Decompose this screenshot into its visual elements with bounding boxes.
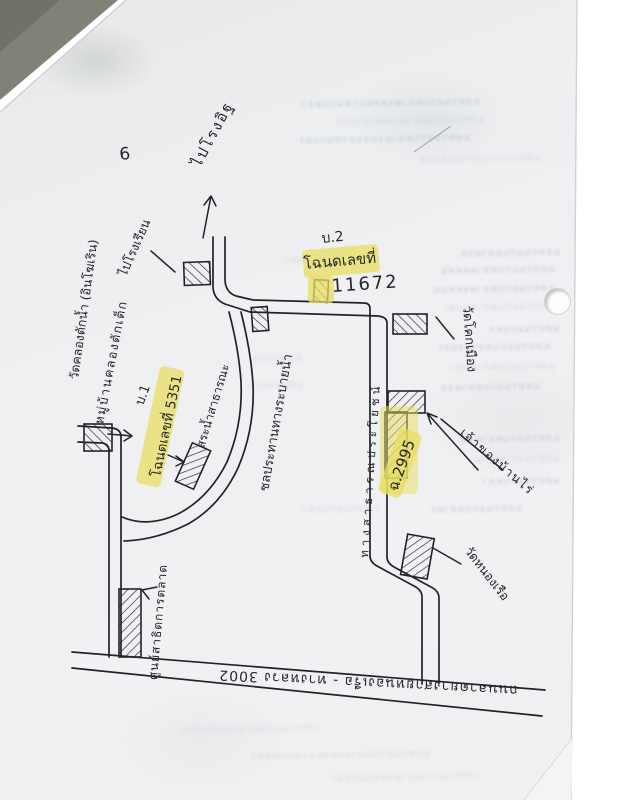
label-temple-bottom: วัดหนองเรือ [462,544,513,604]
building-hatch-rect [393,314,427,334]
label-main-road: ถนนลาดยางสายหนองเรือ - ทางหลวง 3002 [218,666,518,698]
road-s-curve-west [122,312,241,522]
building-hatch-rect [84,424,112,451]
stray-pencil-mark [414,126,451,152]
label-farm: เจ้าของบ้านไร่ [457,425,538,498]
building-hatch-rect [251,306,269,331]
label-direction-kiln: ไปโรงอิฐ [187,98,237,171]
building-hatch-rect [119,589,141,657]
label-village-left: หมู่บ้านคลองตักเต็ก [91,299,131,426]
road-left-south [78,442,109,657]
road-left-north [78,426,121,656]
north-arrow [203,196,216,238]
label-temple-right: วัดโคกเมือง [459,305,480,372]
paper-right-edge [571,0,577,800]
building-hatch-rect [401,534,435,579]
building-hatch-rect [184,262,211,286]
label-pond: สระน้ำสาธารณะ [192,362,233,450]
scanned-sketch-map-page: { "scan": { "page_number": "6", "ghost_g… [0,0,619,800]
road-s-curve-east [124,312,253,541]
label-b2: บ.2 [321,229,345,247]
label-public-way: ทางสาธารณประโยชน์ [357,382,383,558]
page-number: 6 [118,144,131,165]
highlight-deed1-blob [308,276,334,303]
label-temple-left: วัดคลองตักน้ำ (อินโฆเริน) [64,238,101,380]
label-deed1-number: 11672 [331,271,400,297]
label-market: ศูนย์สาธิตการตลาด [146,563,171,680]
pointer-school [151,251,175,272]
label-canal: ชลประทานทางระบายน้ำ [254,352,296,492]
label-direction-school: ไปโรงเรียน [115,216,154,279]
pointer-temple-bottom [433,548,461,564]
sketch-map-drawing: 6 ไปโรงอิฐ บ.2 โฉนดเลขที่ 11672 ไปโรงเรี… [0,0,619,800]
label-b1: บ.1 [133,383,154,408]
pointer-temple-right [436,317,454,339]
arrow-to-pond-building [168,455,184,466]
